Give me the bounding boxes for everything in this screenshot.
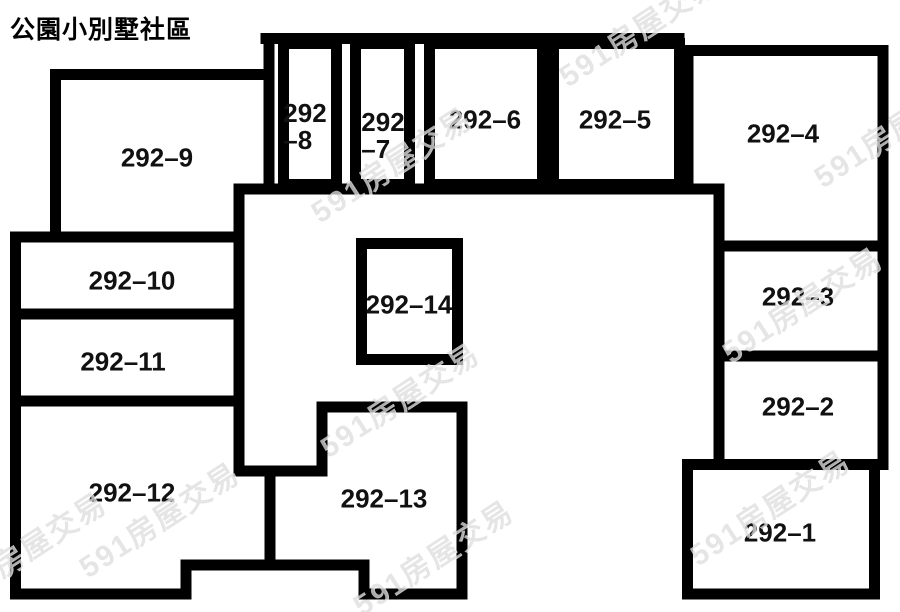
unit-label-line: 292–1 <box>744 520 816 547</box>
community-title: 公園小別墅社區 <box>10 10 192 46</box>
unit-label-292-4: 292–4 <box>747 121 819 148</box>
unit-label-line: 292 <box>283 100 326 127</box>
unit-label-line: –8 <box>283 127 326 154</box>
unit-label-292-13: 292–13 <box>341 486 428 513</box>
unit-label-292-8: 292–8 <box>283 100 326 154</box>
unit-label-line: 292–11 <box>80 349 165 376</box>
unit-label-line: 292–14 <box>366 292 453 319</box>
unit-label-292-11: 292–11 <box>80 349 165 376</box>
unit-label-line: 292–12 <box>89 480 176 507</box>
unit-label-292-3: 292–3 <box>762 284 834 311</box>
unit-label-292-5: 292–5 <box>579 107 651 134</box>
site-plan-screenshot: 公園小別墅社區 292–8292–7292–6292–5292–4292–329… <box>0 0 900 612</box>
unit-label-line: 292–5 <box>579 107 651 134</box>
unit-label-292-14: 292–14 <box>366 292 453 319</box>
unit-label-292-10: 292–10 <box>89 268 176 295</box>
unit-label-292-6: 292–6 <box>449 107 521 134</box>
unit-label-line: 292–2 <box>762 394 834 421</box>
unit-label-292-1: 292–1 <box>744 520 816 547</box>
unit-label-line: 292–13 <box>341 486 428 513</box>
unit-label-line: 292–4 <box>747 121 819 148</box>
unit-label-292-7: 292–7 <box>361 109 404 163</box>
unit-label-line: 292–6 <box>449 107 521 134</box>
unit-label-292-9: 292–9 <box>121 145 193 172</box>
unit-label-292-12: 292–12 <box>89 480 176 507</box>
unit-label-line: –7 <box>361 136 404 163</box>
unit-label-292-2: 292–2 <box>762 394 834 421</box>
unit-label-line: 292–9 <box>121 145 193 172</box>
unit-label-line: 292–10 <box>89 268 176 295</box>
unit-label-line: 292 <box>361 109 404 136</box>
unit-label-line: 292–3 <box>762 284 834 311</box>
